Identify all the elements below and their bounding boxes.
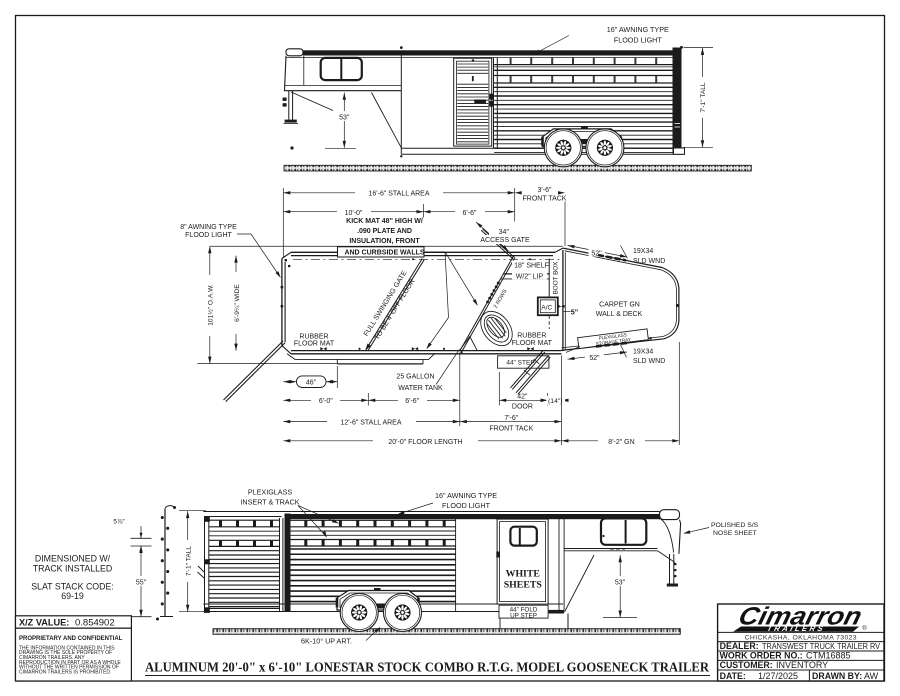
svg-text:12'-6" STALL AREA: 12'-6" STALL AREA xyxy=(340,420,401,427)
svg-text:6'-9¼" WIDE: 6'-9¼" WIDE xyxy=(234,284,241,322)
svg-text:X/Z VALUE:: X/Z VALUE: xyxy=(19,618,69,628)
svg-text:WORK ORDER NO.:: WORK ORDER NO.: xyxy=(720,650,803,660)
svg-text:BOOT BOX: BOOT BOX xyxy=(553,261,560,295)
svg-text:PROPRIETARY AND CONFIDENTIAL: PROPRIETARY AND CONFIDENTIAL xyxy=(19,636,123,642)
svg-text:FLOOD LIGHT: FLOOD LIGHT xyxy=(185,232,232,239)
svg-text:55": 55" xyxy=(136,580,147,587)
svg-text:WHITE: WHITE xyxy=(506,569,541,580)
svg-text:19X34: 19X34 xyxy=(633,348,653,355)
svg-text:6'-6": 6'-6" xyxy=(405,398,419,405)
svg-text:101½" O.A.W.: 101½" O.A.W. xyxy=(207,284,215,326)
svg-text:INVENTORY: INVENTORY xyxy=(776,660,828,670)
svg-text:20'-0" FLOOR LENGTH: 20'-0" FLOOR LENGTH xyxy=(388,439,462,446)
svg-text:WATER TANK: WATER TANK xyxy=(398,385,443,392)
svg-text:7'-6": 7'-6" xyxy=(504,415,518,422)
svg-text:FLOOR MAT: FLOOR MAT xyxy=(294,340,335,347)
svg-text:FLOOD LIGHT: FLOOD LIGHT xyxy=(614,35,663,44)
svg-text:0.854902: 0.854902 xyxy=(75,618,115,629)
svg-text:46": 46" xyxy=(306,380,317,387)
svg-text:PLEXIGLASS: PLEXIGLASS xyxy=(248,487,293,496)
svg-text:UP STEP: UP STEP xyxy=(510,613,537,620)
svg-text:WALL & DECK: WALL & DECK xyxy=(596,311,643,318)
svg-text:KICK MAT 48" HIGH W/: KICK MAT 48" HIGH W/ xyxy=(346,218,423,225)
svg-text:CARPET GN: CARPET GN xyxy=(599,301,640,308)
svg-text:W/2" LIP: W/2" LIP xyxy=(516,273,544,280)
svg-text:ALUMINUM 20'-0" x 6'-10" LONES: ALUMINUM 20'-0" x 6'-10" LONESTAR STOCK … xyxy=(145,660,709,675)
svg-text:5⅞": 5⅞" xyxy=(113,519,125,526)
svg-text:1/27/2025: 1/27/2025 xyxy=(758,671,798,681)
svg-text:69-19: 69-19 xyxy=(61,591,84,601)
svg-text:7′-1" TALL: 7′-1" TALL xyxy=(700,82,707,112)
svg-text:TRAILERS: TRAILERS xyxy=(766,624,826,633)
svg-text:A/C: A/C xyxy=(541,304,552,311)
svg-text:16" AWNING TYPE: 16" AWNING TYPE xyxy=(435,491,497,500)
svg-text:16" AWNING TYPE: 16" AWNING TYPE xyxy=(607,25,669,34)
svg-text:SLD WND: SLD WND xyxy=(633,358,665,365)
svg-text:AND CURBSIDE WALLS: AND CURBSIDE WALLS xyxy=(344,249,424,256)
svg-text:INSULATION, FRONT: INSULATION, FRONT xyxy=(349,238,420,245)
svg-text:FLOOD LIGHT: FLOOD LIGHT xyxy=(442,501,491,510)
svg-text:18" SHELF: 18" SHELF xyxy=(514,263,549,270)
svg-text:DEALER:: DEALER: xyxy=(720,641,759,651)
svg-text:®: ® xyxy=(862,625,867,632)
svg-text:42": 42" xyxy=(517,394,528,401)
svg-text:10'-0": 10'-0" xyxy=(345,210,363,217)
svg-text:SLD WND: SLD WND xyxy=(633,258,665,265)
svg-text:.090 PLATE AND: .090 PLATE AND xyxy=(357,228,412,235)
svg-text:52": 52" xyxy=(589,355,600,362)
svg-text:FLOOR MAT: FLOOR MAT xyxy=(512,340,553,347)
svg-text:FRONT TACK: FRONT TACK xyxy=(523,196,567,203)
svg-text:5": 5" xyxy=(571,307,578,316)
svg-text:POLISHED S/S: POLISHED S/S xyxy=(711,522,759,529)
svg-text:DRAWN BY:: DRAWN BY: xyxy=(812,671,862,681)
svg-text:NOSE SHEET: NOSE SHEET xyxy=(713,530,757,537)
svg-text:25 GALLON: 25 GALLON xyxy=(396,374,434,381)
svg-text:53": 53" xyxy=(339,115,350,122)
svg-text:DOOR: DOOR xyxy=(512,404,533,411)
svg-text:6'-6": 6'-6" xyxy=(463,210,477,217)
svg-text:7'-1" TALL: 7'-1" TALL xyxy=(185,546,192,576)
svg-text:TRANSWEST TRUCK TRAILER RV: TRANSWEST TRUCK TRAILER RV xyxy=(762,641,880,651)
svg-text:16'-6" STALL AREA: 16'-6" STALL AREA xyxy=(368,190,429,197)
svg-text:8" AWNING TYPE: 8" AWNING TYPE xyxy=(180,224,237,231)
svg-text:DIMENSIONED W/: DIMENSIONED W/ xyxy=(35,554,111,564)
svg-text:CUSTOMER:: CUSTOMER: xyxy=(720,660,773,670)
svg-text:ACCESS GATE: ACCESS GATE xyxy=(480,237,530,244)
svg-text:RUBBER: RUBBER xyxy=(299,333,328,340)
svg-text:CTM16885: CTM16885 xyxy=(806,650,851,660)
svg-text:6K-10° UP ART.: 6K-10° UP ART. xyxy=(301,636,352,645)
svg-text:CIMARRON TRAILERS IS PROHIBITE: CIMARRON TRAILERS IS PROHIBITED. xyxy=(19,670,111,676)
svg-text:8'-2" GN: 8'-2" GN xyxy=(608,439,634,446)
svg-text:34": 34" xyxy=(499,229,510,236)
svg-text:SHEETS: SHEETS xyxy=(504,580,543,591)
svg-text:(14"): (14") xyxy=(548,398,563,405)
svg-text:FRONT TACK: FRONT TACK xyxy=(489,425,533,432)
svg-text:3'-6": 3'-6" xyxy=(538,187,552,194)
svg-text:6'-0": 6'-0" xyxy=(319,398,333,405)
svg-text:AW: AW xyxy=(864,671,879,681)
svg-text:TRACK INSTALLED: TRACK INSTALLED xyxy=(33,564,113,574)
svg-text:19X34: 19X34 xyxy=(633,248,653,255)
svg-text:53": 53" xyxy=(615,580,626,587)
svg-text:DATE:: DATE: xyxy=(720,671,746,681)
svg-text:SLAT STACK CODE:: SLAT STACK CODE: xyxy=(31,582,114,592)
svg-text:INSERT & TRACK: INSERT & TRACK xyxy=(240,498,299,507)
svg-text:RUBBER: RUBBER xyxy=(517,332,546,339)
